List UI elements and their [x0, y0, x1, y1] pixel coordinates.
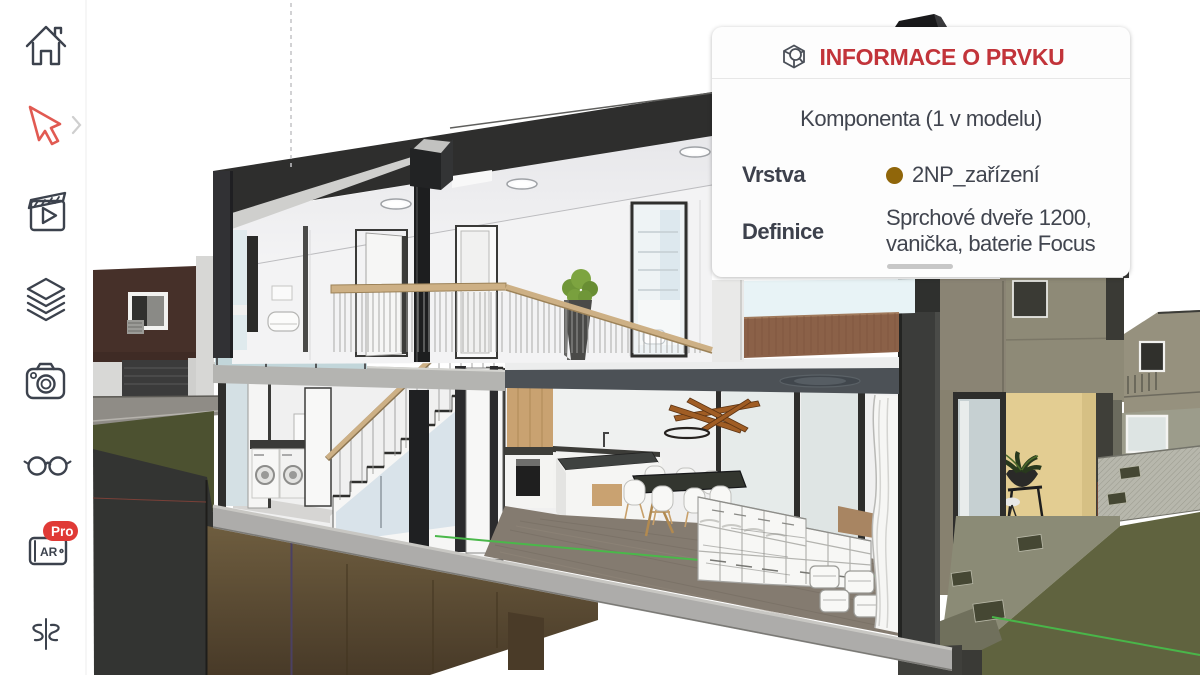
- svg-text:AR: AR: [40, 545, 58, 559]
- svg-text:Pro: Pro: [51, 524, 74, 539]
